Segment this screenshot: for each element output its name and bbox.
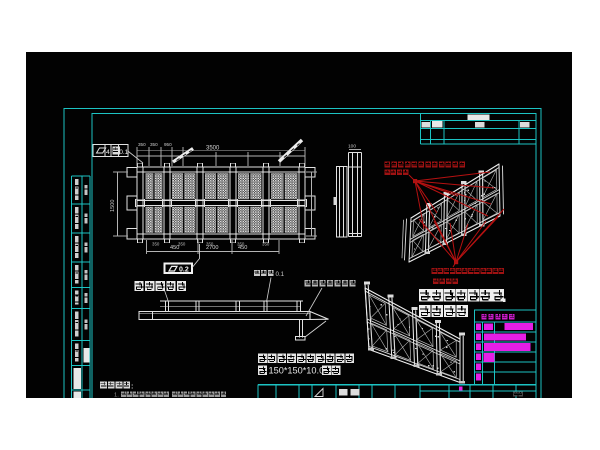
- svg-text:350: 350: [152, 242, 160, 247]
- svg-text:350: 350: [206, 242, 214, 247]
- svg-text:4: 4: [106, 149, 110, 156]
- svg-text:350: 350: [178, 242, 186, 247]
- svg-text:950: 950: [164, 142, 172, 147]
- svg-text:0.1: 0.1: [119, 149, 128, 156]
- svg-text::: :: [131, 382, 133, 391]
- svg-text:0.1: 0.1: [276, 271, 285, 278]
- svg-text:350: 350: [262, 242, 270, 247]
- svg-text:1.: 1.: [114, 393, 119, 399]
- svg-text:100: 100: [348, 144, 356, 150]
- svg-text:350: 350: [138, 142, 146, 147]
- svg-text:350: 350: [237, 242, 245, 247]
- svg-text:0.2: 0.2: [179, 267, 189, 274]
- svg-text:150*150*10.0: 150*150*10.0: [269, 366, 325, 376]
- svg-text:350: 350: [150, 142, 158, 147]
- svg-text:3500: 3500: [206, 146, 220, 152]
- svg-text:1500: 1500: [110, 200, 116, 212]
